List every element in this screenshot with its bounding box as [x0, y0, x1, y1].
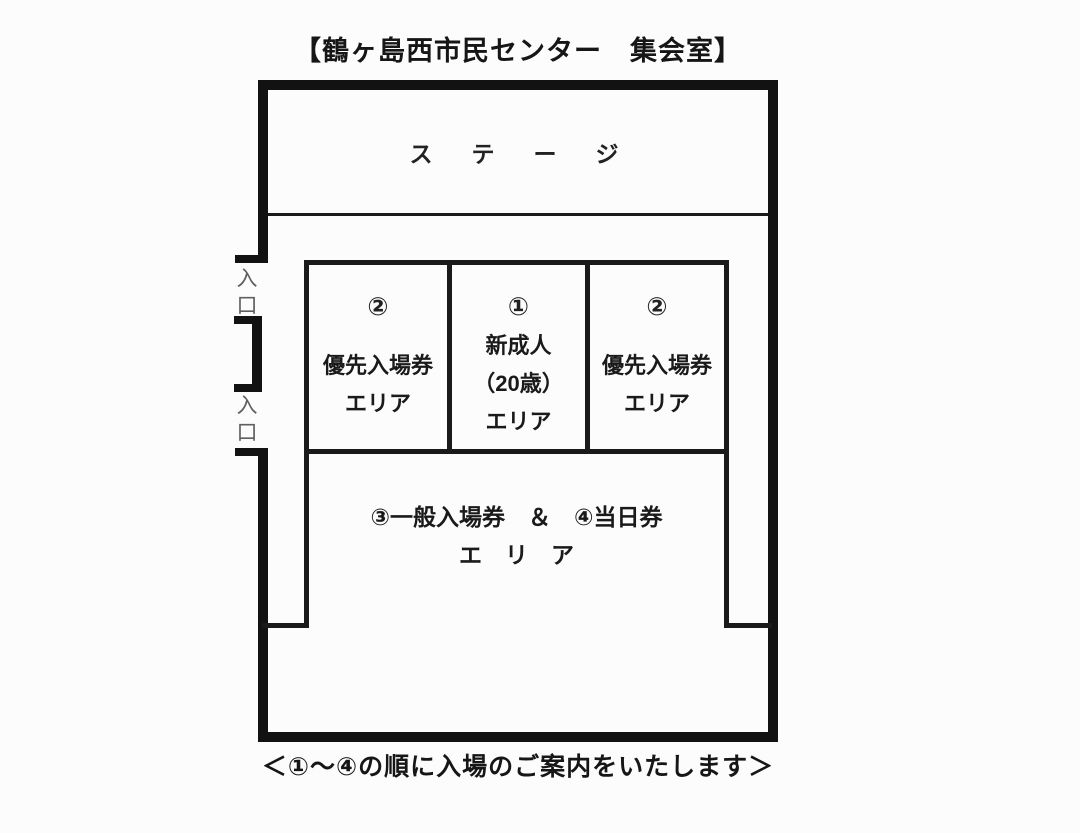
- area-general-line2: エ リ ア: [459, 536, 574, 574]
- seating-block-bottom-right-stub: [724, 623, 772, 628]
- area-priority-left-number: ②: [367, 287, 388, 327]
- stage-divider-line: [268, 213, 768, 216]
- wall-top: [258, 80, 778, 90]
- page-title: 【鶴ヶ島西市民センター 集会室】: [158, 33, 878, 69]
- floor-plan: 【鶴ヶ島西市民センター 集会室】 ス テ ー ジ 入口 入口 ② 優先入場券 エ…: [0, 0, 1080, 833]
- seating-block-right-line: [724, 260, 729, 628]
- wall-left-middle-bottom-cap: [234, 384, 262, 392]
- area-general-line1: ③一般入場券 ＆ ④当日券: [371, 498, 663, 536]
- area-general: ③一般入場券 ＆ ④当日券 エ リ ア: [309, 454, 724, 624]
- area-priority-left-name: 優先入場券: [323, 347, 433, 385]
- area-priority-right: ② 優先入場券 エリア: [590, 265, 724, 449]
- seating-block-bottom-left-stub: [262, 623, 309, 628]
- wall-left-upper-end-cap: [235, 255, 268, 263]
- entry-order-caption: ＜①～④の順に入場のご案内をいたします＞: [218, 747, 818, 787]
- area-new-adult-detail: （20歳）: [473, 365, 563, 403]
- wall-right: [768, 80, 778, 742]
- entrance-label-bottom: 入口: [232, 393, 258, 449]
- wall-left-lower: [258, 448, 268, 742]
- area-new-adult-suffix: エリア: [485, 403, 551, 441]
- area-priority-right-suffix: エリア: [624, 385, 690, 423]
- area-new-adult: ① 新成人 （20歳） エリア: [452, 265, 585, 449]
- stage-label: ス テ ー ジ: [410, 135, 627, 169]
- wall-left-middle-segment: [252, 316, 262, 392]
- stage-area: ス テ ー ジ: [268, 90, 768, 213]
- wall-left-upper: [258, 80, 268, 257]
- area-priority-left: ② 優先入場券 エリア: [309, 265, 447, 449]
- entrance-label-top: 入口: [232, 266, 258, 322]
- area-priority-right-number: ②: [646, 287, 667, 327]
- area-priority-left-suffix: エリア: [345, 385, 411, 423]
- wall-bottom: [258, 732, 778, 742]
- area-priority-right-name: 優先入場券: [602, 347, 712, 385]
- area-new-adult-number: ①: [508, 287, 529, 327]
- area-new-adult-name: 新成人: [485, 327, 551, 365]
